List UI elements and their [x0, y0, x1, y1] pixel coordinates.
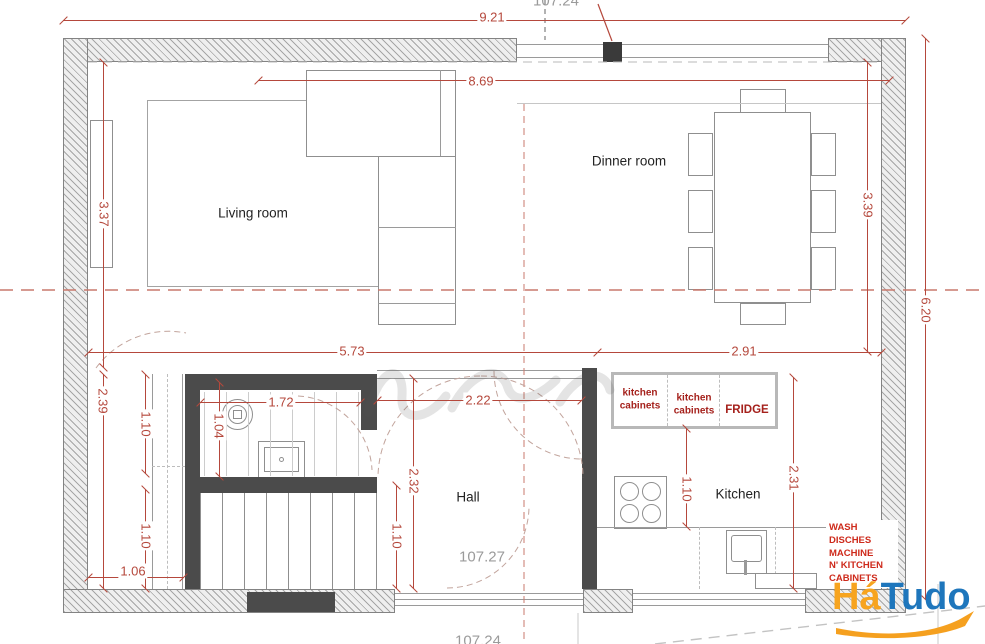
kitchen-cabinet-divider: [699, 527, 700, 589]
dining-chair: [688, 247, 713, 290]
bottom-window-line: [395, 593, 583, 594]
dinner-room-edge-line: [517, 103, 906, 104]
dim-right-total-height: 6.20: [919, 295, 934, 324]
hatudo-logo: HáTudo: [832, 578, 971, 616]
wash-note-line: DISCHES: [829, 535, 895, 548]
dim-dinner-height: 3.39: [861, 190, 876, 219]
kitchen-cabinets-label-1: kitchen cabinets: [614, 388, 666, 413]
structural-column: [603, 42, 622, 62]
sofa-cushion-line: [378, 303, 456, 304]
door-arc-hall-bottom: [447, 506, 529, 588]
wall-bottom-left: [63, 589, 395, 613]
level-annotation-top: 107.24: [533, 0, 579, 10]
hall-opening-line: [377, 378, 582, 379]
logo-text-tudo: Tudo: [881, 576, 971, 618]
wall-left: [63, 38, 88, 613]
wall-top-left: [63, 38, 517, 62]
fridge-label: FRIDGE: [725, 403, 768, 417]
dim-counter-depth: 1.10: [680, 474, 695, 503]
sofa-divider: [440, 70, 441, 157]
dining-chair: [811, 190, 836, 233]
stove-burner: [620, 504, 639, 523]
hall-kitchen-divider-wall: [582, 368, 597, 589]
wash-note-line: MACHINE: [829, 548, 895, 561]
dim-stairs-lower: 1.10: [139, 521, 154, 550]
radiator: [90, 120, 113, 268]
dim-line-hall-kitchen-span: [88, 352, 882, 353]
level-annotation-hall: 107.27: [459, 549, 505, 566]
dining-chair: [740, 303, 786, 325]
dim-kitchen-width: 2.91: [729, 344, 758, 359]
bathroom-wall-bottom: [185, 477, 377, 493]
door-arc-stairs: [96, 331, 186, 368]
room-label-living: Living room: [218, 206, 288, 221]
dishwasher-front: [755, 573, 817, 589]
wall-bottom-middle: [583, 589, 633, 613]
bottom-window-line: [633, 599, 805, 600]
bathroom-wall-top: [185, 374, 377, 390]
stair-strip-line: [182, 374, 183, 589]
stove-burner: [642, 482, 661, 501]
dim-hall-span: 5.73: [337, 344, 366, 359]
dining-chair: [688, 190, 713, 233]
stove-burner: [642, 504, 661, 523]
room-label-dinner: Dinner room: [592, 154, 666, 169]
dim-line-interior-width: [258, 80, 890, 81]
dim-stairs-height: 2.39: [96, 386, 111, 415]
stair-strip-dash: [152, 466, 185, 467]
bottom-window-line: [633, 605, 805, 606]
dining-chair: [740, 89, 786, 113]
bathroom-wall-left: [185, 374, 200, 589]
dim-hall-lower: 1.10: [390, 521, 405, 550]
dim-overall-width: 9.21: [477, 10, 506, 25]
sofa-seat: [378, 156, 456, 325]
stair-strip-dash: [167, 374, 168, 589]
bottom-window-line: [395, 605, 583, 606]
column-leader-line: [598, 4, 612, 41]
dim-wc-width: 1.72: [266, 395, 295, 410]
sink-faucet: [744, 560, 747, 575]
room-label-kitchen: Kitchen: [715, 487, 760, 502]
dim-stairs-upper: 1.10: [139, 409, 154, 438]
door-arc-hall-right: [481, 376, 583, 478]
stair-strip-line: [152, 374, 153, 589]
wash-note-line: WASH: [829, 522, 895, 535]
door-arc-kitchen: [494, 371, 582, 459]
floor-plan: 9.21 8.69 3.37 3.39 6.20 5.73 2.91 2.39 …: [0, 0, 985, 644]
dim-stairs-width: 1.06: [118, 564, 147, 579]
level-annotation-bottom: 107.24: [455, 633, 501, 644]
kitchen-sink-basin: [731, 535, 762, 562]
bottom-window-line: [633, 593, 805, 594]
dining-chair: [688, 133, 713, 176]
entrance-threshold: [247, 592, 335, 612]
staircase: [200, 493, 378, 589]
wash-note-line: N' KITCHEN: [829, 560, 895, 573]
door-arc-hall-left: [378, 376, 480, 478]
sofa-back: [306, 70, 456, 157]
kitchen-cabinets-label-2: kitchen cabinets: [668, 393, 720, 418]
dining-table: [714, 112, 811, 303]
dim-kitchen-depth: 2.31: [787, 463, 802, 492]
dim-interior-width: 8.69: [466, 74, 495, 89]
top-window-line: [517, 44, 828, 45]
dim-living-height: 3.37: [97, 199, 112, 228]
top-window-line: [517, 57, 828, 58]
bottom-window-line: [395, 599, 583, 600]
dim-wc-height: 1.04: [212, 411, 227, 440]
dining-chair: [811, 247, 836, 290]
dim-hall-width: 2.22: [463, 393, 492, 408]
stove-burner: [620, 482, 639, 501]
room-label-hall: Hall: [456, 490, 479, 505]
hall-opening-line: [377, 370, 582, 371]
sofa-cushion-line: [378, 227, 456, 228]
dim-hall-height: 2.32: [407, 466, 422, 495]
dining-chair: [811, 133, 836, 176]
logo-text-ha: Há: [832, 576, 881, 618]
